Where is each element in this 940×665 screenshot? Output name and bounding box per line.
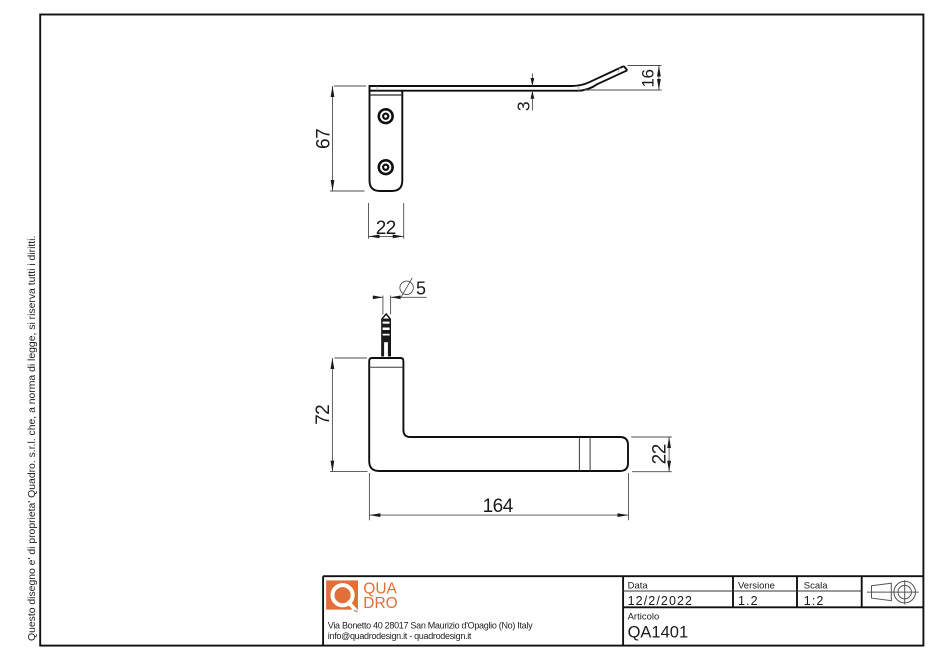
- svg-text:5: 5: [416, 279, 426, 299]
- svg-text:16: 16: [639, 70, 658, 88]
- svg-text:DRO: DRO: [363, 595, 397, 612]
- svg-text:1:2: 1:2: [804, 594, 825, 608]
- svg-text:Via Bonetto 40 28017 San Maur: Via Bonetto 40 28017 San Maurizio d'Opag…: [328, 621, 533, 631]
- svg-text:67: 67: [313, 129, 334, 149]
- svg-text:info@quadrodesign.it - quadr: info@quadrodesign.it - quadrodesign.it: [328, 631, 472, 641]
- svg-text:1.2: 1.2: [738, 594, 759, 608]
- svg-text:22: 22: [376, 218, 396, 239]
- svg-text:12/2/2022: 12/2/2022: [628, 594, 694, 608]
- svg-text:164: 164: [483, 496, 514, 517]
- svg-text:Versione: Versione: [738, 581, 775, 592]
- svg-text:72: 72: [313, 405, 334, 425]
- svg-text:22: 22: [650, 444, 671, 464]
- svg-text:3: 3: [513, 101, 533, 111]
- svg-text:Scala: Scala: [804, 581, 828, 592]
- svg-text:Data: Data: [628, 581, 649, 592]
- svg-text:Articolo: Articolo: [628, 611, 660, 622]
- svg-text:QA1401: QA1401: [628, 624, 689, 642]
- svg-text:Questo disegno e' di proprieta: Questo disegno e' di proprieta' Quadro. …: [27, 236, 38, 641]
